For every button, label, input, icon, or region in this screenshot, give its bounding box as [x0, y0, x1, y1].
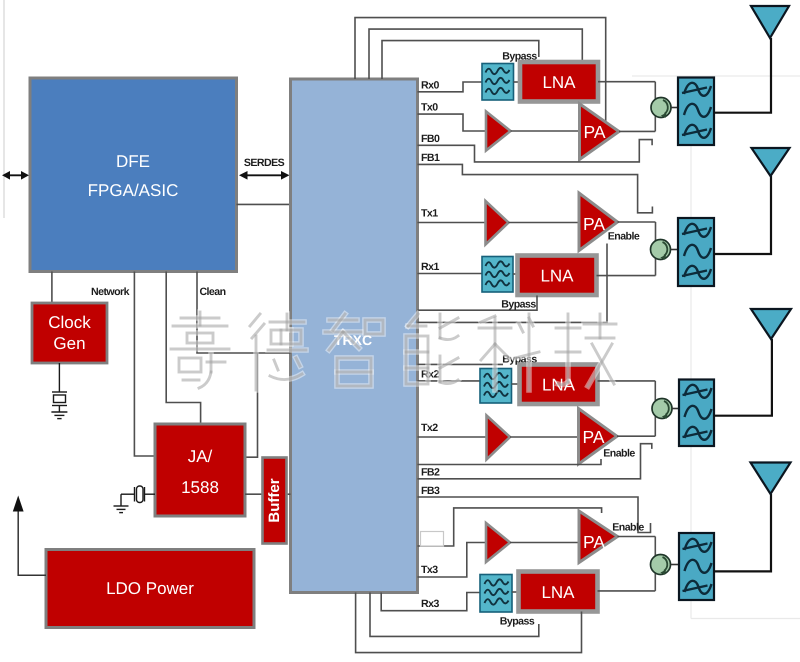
svg-text:PA: PA	[582, 427, 604, 447]
svg-text:Enable: Enable	[612, 522, 644, 534]
svg-text:Rx0: Rx0	[421, 80, 439, 92]
svg-text:JA/: JA/	[188, 447, 213, 466]
svg-text:LNA: LNA	[542, 73, 576, 92]
svg-text:Clock: Clock	[48, 313, 91, 332]
svg-text:FB1: FB1	[421, 152, 440, 164]
svg-text:Tx0: Tx0	[421, 102, 438, 114]
svg-text:PA: PA	[583, 214, 605, 234]
svg-text:Enable: Enable	[603, 448, 635, 460]
svg-text:Enable: Enable	[608, 231, 640, 243]
svg-text:Gen: Gen	[53, 334, 85, 353]
svg-text:PA: PA	[583, 122, 605, 142]
svg-text:LNA: LNA	[541, 583, 575, 602]
svg-text:Rx1: Rx1	[421, 261, 439, 273]
svg-text:1588: 1588	[181, 478, 219, 497]
svg-text:FB3: FB3	[421, 485, 440, 497]
svg-text:Rx3: Rx3	[421, 598, 439, 610]
svg-text:FB2: FB2	[421, 467, 440, 479]
svg-text:Clean: Clean	[199, 286, 225, 298]
svg-text:Tx3: Tx3	[421, 564, 438, 576]
svg-text:Tx2: Tx2	[421, 422, 438, 434]
svg-text:FPGA/ASIC: FPGA/ASIC	[88, 181, 179, 200]
svg-text:PA: PA	[583, 532, 605, 552]
svg-text:LDO Power: LDO Power	[106, 579, 194, 598]
svg-text:Network: Network	[91, 286, 130, 298]
svg-text:SERDES: SERDES	[244, 157, 285, 169]
svg-text:Bypass: Bypass	[500, 616, 535, 628]
svg-text:Buffer: Buffer	[266, 478, 283, 522]
svg-text:FB0: FB0	[421, 133, 440, 145]
svg-text:Bypass: Bypass	[501, 299, 536, 311]
svg-text:DFE: DFE	[116, 152, 150, 171]
svg-text:LNA: LNA	[540, 267, 574, 286]
svg-text:Tx1: Tx1	[421, 208, 438, 220]
